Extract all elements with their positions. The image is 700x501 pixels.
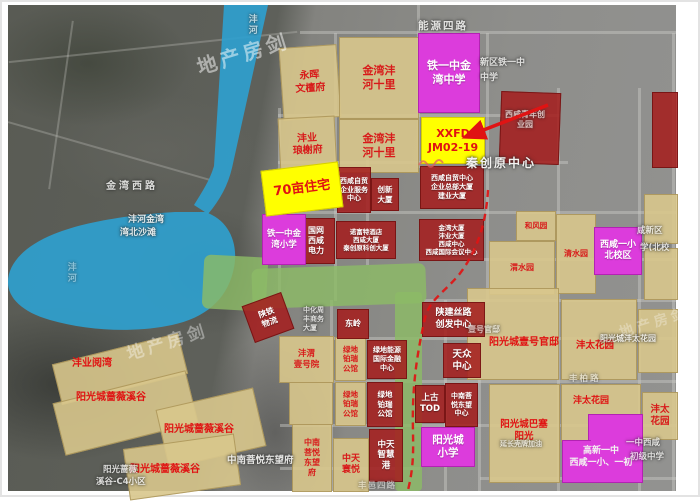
road bbox=[300, 31, 676, 34]
block-zhongnan-dongwang-zhongxin: 中南菩 悦东望 中心 bbox=[445, 383, 478, 427]
school-xixian-yixiao-beixiaoqu: 西咸一小 北校区 bbox=[594, 227, 642, 275]
block-lvdi-bairui-2: 绿地 铂瑞 公馆 bbox=[335, 382, 366, 426]
block-yonghui-wentanfu: 永晖 文檀府 bbox=[279, 44, 342, 121]
block-jinwan-fenghe-shili-2: 金湾沣 河十里 bbox=[339, 119, 419, 173]
place-label-qinchuangyuan: 秦创原中心 bbox=[466, 156, 536, 172]
road-label-nengyuan-silu: 能源四路 bbox=[418, 20, 468, 34]
block-tianzhong-zhongxin: 天众 中心 bbox=[443, 343, 481, 378]
label-qiangwei-xigu-1: 阳光城蔷薇溪谷 bbox=[76, 391, 146, 404]
block-70mu-residential: 70亩住宅 bbox=[260, 161, 343, 216]
block-fengwei-yihaoyuan: 沣渭 壹号院 bbox=[279, 336, 334, 383]
school-tieyi-jinwan-zhongxue: 铁一中金 湾中学 bbox=[418, 33, 480, 113]
road-label-fengbai-lu: 丰柏路 bbox=[569, 374, 601, 385]
label-fengtai-huayuan-2: 沣太花园 bbox=[573, 396, 609, 408]
place-label-c4-line1: 阳光蔷薇 bbox=[103, 465, 137, 476]
block-right-red bbox=[652, 92, 678, 168]
place-label-yizhong-xixian: 一中西咸 bbox=[626, 438, 660, 449]
block-weishuiyuan: 渭水园 bbox=[489, 241, 555, 295]
road-label-fengyi-lu: 丰邑四路 bbox=[358, 481, 396, 492]
block-fengtai-huayuan-small: 沣太 花园 bbox=[642, 392, 678, 440]
place-label-yihao-guandi-bg: 壹号官邸 bbox=[468, 325, 500, 335]
lake-label-fenghe: 沣河 bbox=[64, 262, 76, 284]
place-label-xinqu-tieyi: 新区铁一中 bbox=[480, 58, 525, 70]
place-label-yanchang-jiayou: 延长壳牌加油 bbox=[500, 440, 542, 449]
block-zhongtian-zhihuigang: 中天 智慧 港 bbox=[369, 429, 403, 482]
place-label-zhongnan-dongwangfu: 中南菩悦东望府 bbox=[227, 455, 294, 467]
block-shanggu-tod: 上古 TOD bbox=[415, 385, 445, 423]
road-label-jinwan-xilu: 金湾西路 bbox=[106, 180, 158, 193]
map-canvas: 永晖 文檀府 金湾沣 河十里 沣业 琅榭府 金湾沣 河十里 和风园 渭水园 清水… bbox=[0, 0, 700, 497]
block-right-tan-2 bbox=[644, 248, 678, 300]
place-label-chuji-zhongxue: 初级中学 bbox=[630, 452, 664, 463]
school-tieyi-jinwan-xiaoxue: 铁一中金 湾小学 bbox=[262, 214, 306, 265]
place-label-xue-beixiao: 学(北校 bbox=[640, 243, 669, 254]
place-label-wanbei-shatan: 湾北沙滩 bbox=[120, 228, 156, 240]
block-qingshuiyuan: 清水园 bbox=[556, 214, 596, 294]
block-nuofute-jiudian: 诺富特酒店 西咸大厦 秦创原科创大厦 bbox=[336, 221, 396, 259]
place-label-zhongxue: 中学 bbox=[480, 73, 498, 85]
block-zongbu-dasha: 西咸自贸中心 企业总部大厦 建业大厦 bbox=[420, 166, 484, 209]
block-dongling: 东岭 bbox=[337, 309, 369, 339]
label-qiangwei-xigu-2: 阳光城蔷薇溪谷 bbox=[164, 423, 234, 436]
block-lvdi-bairui-1: 绿地 铂瑞 公馆 bbox=[335, 337, 366, 381]
place-label-fenghe-jinwan: 沣河金湾 bbox=[128, 215, 164, 227]
label-fengye-yuewan: 沣业阅湾 bbox=[72, 357, 112, 370]
school-yangguangcheng-xiaoxue: 阳光城 小学 bbox=[421, 427, 475, 467]
block-chuangxin-dasha: 创新 大厦 bbox=[371, 178, 399, 211]
block-jinwan-fenghe-shili-1: 金湾沣 河十里 bbox=[339, 37, 419, 119]
block-lvdi-nengyuan-jinrong: 绿地能源 国际金融 中心 bbox=[367, 340, 407, 379]
place-label-zhonghua-shangwu: 中化周 丰商务 大厦 bbox=[303, 306, 324, 333]
block-tan-mid bbox=[289, 382, 333, 425]
block-hefengyuan: 和风园 bbox=[516, 211, 556, 241]
block-lvdi-bairui-guan: 绿地 铂瑞 公馆 bbox=[367, 382, 403, 427]
block-zhongnan-dongwangfu: 中南 菩悦 东望 府 bbox=[292, 424, 332, 492]
place-label-qingnian-chuangye: 西咸青年创 业园 bbox=[505, 110, 545, 131]
block-jinwan-dasha: 金湾大厦 沣业大厦 西咸中心 西咸国际会议中心 bbox=[419, 219, 484, 261]
label-yihao-guandi: 阳光城壹号官邸 bbox=[489, 336, 559, 349]
label-qiangwei-xigu-3: 阳光城蔷薇溪谷 bbox=[130, 463, 200, 476]
place-label-c4-line2: 溪谷-C4小区 bbox=[96, 477, 146, 488]
place-label-xian-xinqu: 咸新区 bbox=[637, 226, 663, 237]
